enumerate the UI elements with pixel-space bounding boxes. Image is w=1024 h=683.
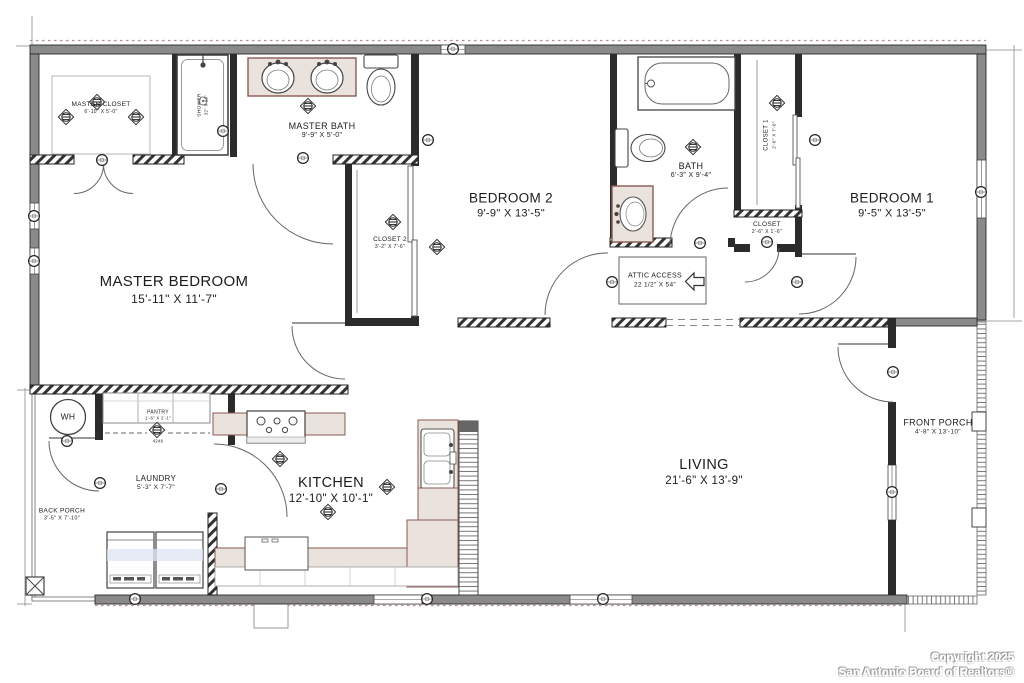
floor-plan: MASTER CLOSET 6'-10" X 5'-0" MASTER BATH… [0, 0, 1024, 683]
toilet-icon [364, 55, 398, 105]
room-label-closet-2: CLOSET 2 3'-2" X 7'-6" [373, 236, 407, 250]
room-label-bedroom-2: BEDROOM 2 9'-9" X 13'-5" [469, 191, 553, 222]
kitchen-sink-icon [421, 429, 456, 489]
bar-counter [459, 421, 478, 595]
kitchen-island [245, 537, 308, 570]
floor-plan-drawing [0, 0, 1024, 683]
label-pantry-note: 4248 [153, 438, 164, 443]
room-label-front-porch: FRONT PORCH 4'-8" X 13'-10" [903, 417, 972, 436]
room-label-kitchen: KITCHEN 12'-10" X 10'-1" [289, 474, 373, 507]
room-label-master-closet: MASTER CLOSET 6'-10" X 5'-0" [71, 101, 130, 115]
room-label-pantry: PANTRY 1'-6" X 2'-1" [145, 409, 171, 421]
room-label-living: LIVING 21'-6" X 13'-9" [665, 456, 742, 489]
copyright-line-2: San Antonio Board of Realtors® [839, 666, 1014, 681]
bathtub-icon [638, 57, 735, 110]
room-label-laundry: LAUNDRY 5'-3" X 7'-7" [136, 474, 176, 492]
vanity-sink-icon [612, 186, 653, 242]
room-label-bath: BATH 6'-3" X 9'-4" [671, 161, 712, 181]
room-label-back-porch: BACK PORCH 3'-5" X 7'-10" [39, 508, 85, 523]
bath-fixtures [612, 57, 735, 242]
room-label-closet: CLOSET 2'-6" X 1'-6" [752, 221, 782, 235]
room-label-master-bath: MASTER BATH 9'-9" X 5'-0" [289, 121, 356, 141]
room-label-shower: SHOWER 32" X 60" [197, 93, 208, 117]
room-label-bedroom-1: BEDROOM 1 9'-5" X 13'-5" [850, 191, 934, 222]
room-label-closet-1: CLOSET 1 2'-6" X 7'-6" [763, 119, 776, 150]
master-bath-fixtures [177, 55, 398, 155]
label-water-heater: WH [61, 412, 76, 423]
label-attic-access: ATTIC ACCESS 22 1/2" X 54" [628, 273, 682, 290]
hall-dashed-opening [666, 320, 740, 326]
porch-wall [888, 318, 896, 595]
range-icon [247, 411, 305, 443]
toilet-icon [615, 129, 665, 167]
copyright-notice: Copyright 2025 San Antonio Board of Real… [839, 651, 1014, 681]
copyright-line-1: Copyright 2025 [839, 651, 1014, 666]
room-label-master-bedroom: MASTER BEDROOM 15'-11" X 11'-7" [100, 273, 249, 307]
